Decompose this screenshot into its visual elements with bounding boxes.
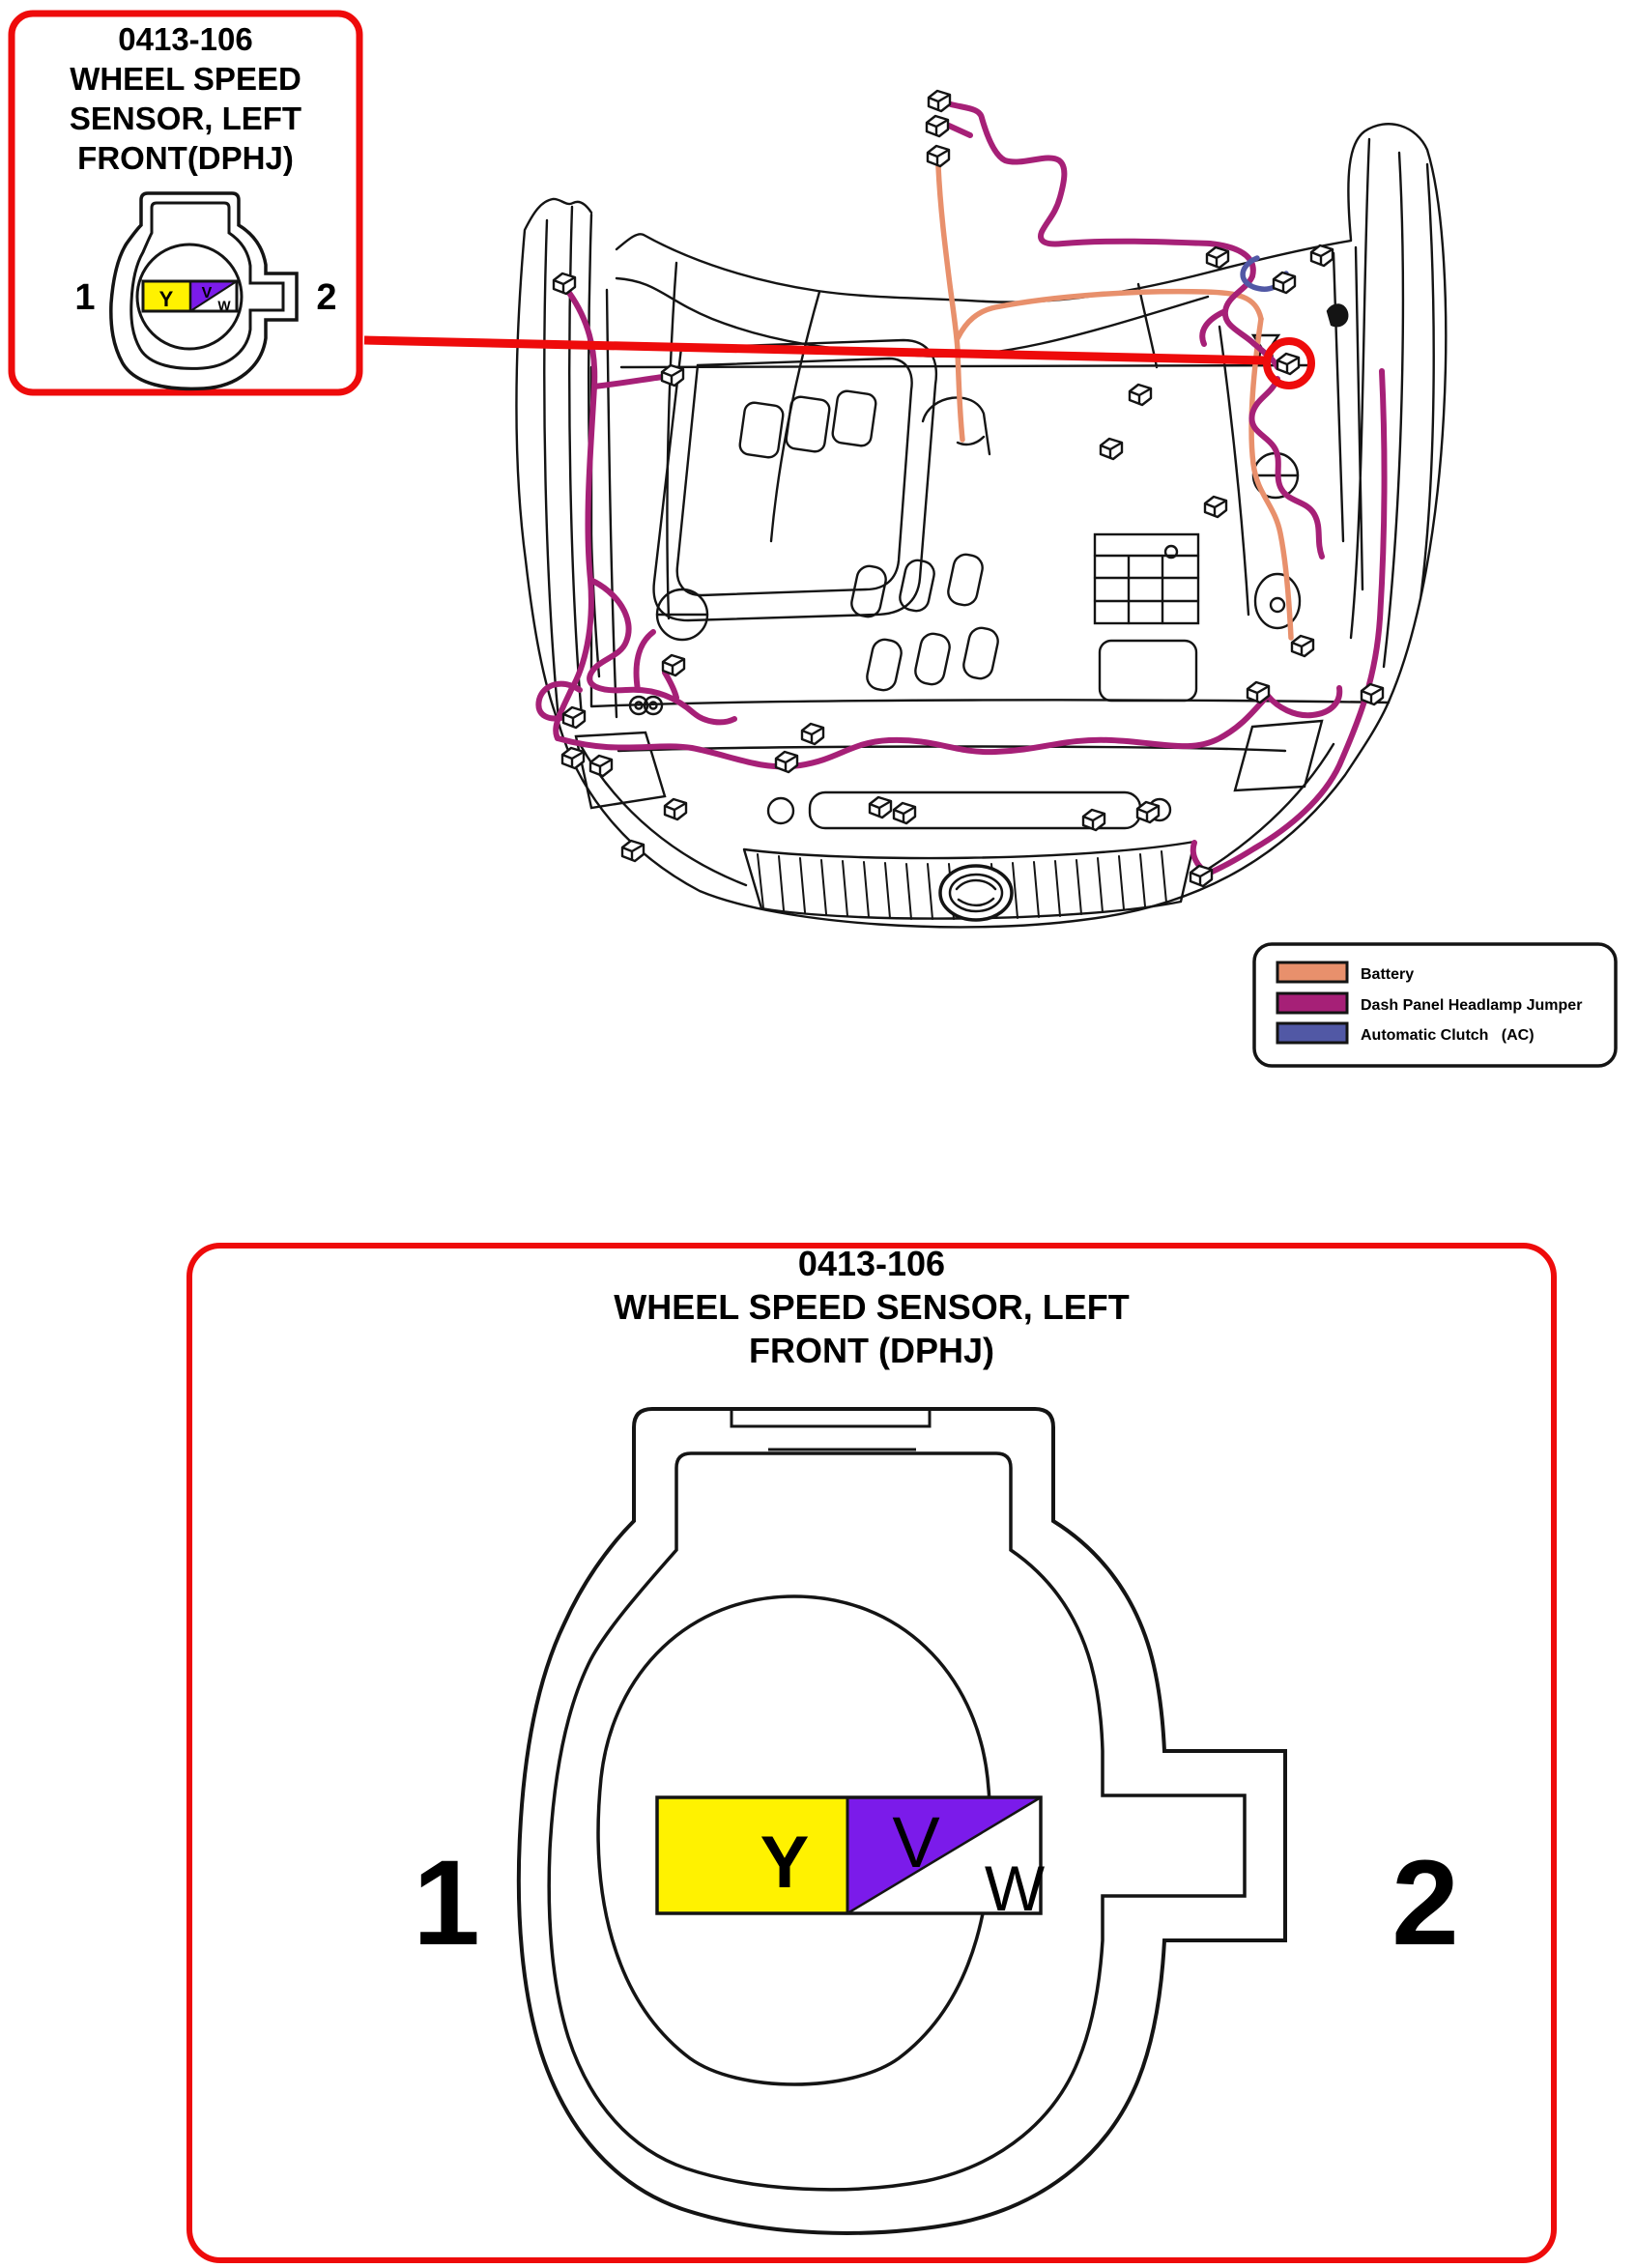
dphj-wire-top-loop xyxy=(951,104,1210,244)
connector-icon xyxy=(662,365,683,386)
washer-reservoir-hole xyxy=(1271,598,1284,612)
connector-icon xyxy=(928,146,949,166)
large-pin-1-label: 1 xyxy=(413,1836,480,1970)
large-callout-title-line1: WHEEL SPEED SENSOR, LEFT xyxy=(614,1287,1129,1327)
legend-label-battery: Battery xyxy=(1361,966,1414,983)
dphj-wire-fender-stub xyxy=(594,377,663,387)
connector-icon xyxy=(1207,247,1228,268)
connector-icon xyxy=(927,116,948,136)
connector-icon xyxy=(1248,682,1269,703)
legend-swatch-dphj xyxy=(1277,993,1347,1013)
large-callout-code: 0413-106 xyxy=(798,1244,945,1283)
small-connector-drawing: Y V W xyxy=(111,193,297,388)
connector-icon xyxy=(929,91,950,111)
legend-row-battery: Battery xyxy=(1277,962,1414,983)
connector-icon xyxy=(1362,684,1383,704)
large-pin-2-label: 2 xyxy=(1391,1836,1459,1970)
connector-icon xyxy=(894,803,915,823)
connector-icon xyxy=(802,724,823,744)
small-callout-title-line3: FRONT(DPHJ) xyxy=(77,140,294,176)
legend-label-dphj: Dash Panel Headlamp Jumper xyxy=(1361,997,1582,1014)
wire-color-legend: Battery Dash Panel Headlamp Jumper Autom… xyxy=(1237,933,1635,1077)
highlighted-connector-icon xyxy=(1277,354,1299,374)
right-fender-outline xyxy=(1334,124,1446,700)
large-connector-top-notch xyxy=(731,1409,930,1450)
small-wire-letter-y: Y xyxy=(159,287,174,311)
connector-icon xyxy=(563,707,585,728)
fuse-box xyxy=(1095,534,1198,623)
connector-icon xyxy=(1205,497,1226,517)
connector-icon xyxy=(665,799,686,819)
connector-icon xyxy=(554,273,575,294)
large-callout-box: 0413-106 WHEEL SPEED SENSOR, LEFT FRONT … xyxy=(179,1237,1570,2268)
cowl-lines xyxy=(617,234,1351,541)
connector-icon xyxy=(622,841,644,861)
connector-icon xyxy=(663,655,684,675)
legend-swatch-battery xyxy=(1277,962,1347,982)
legend-swatch-ac xyxy=(1277,1023,1347,1043)
dphj-wire-top-stub xyxy=(949,126,970,135)
dphj-wire-right-hooks xyxy=(1193,688,1339,874)
legend-row-dphj: Dash Panel Headlamp Jumper xyxy=(1277,993,1582,1014)
connector-icon xyxy=(1130,385,1151,405)
connector-icon xyxy=(1083,810,1104,830)
brand-emblem xyxy=(940,866,1012,920)
coolant-reservoir xyxy=(1100,641,1196,701)
small-callout-title-line2: SENSOR, LEFT xyxy=(70,100,301,136)
large-chip-yellow xyxy=(657,1797,847,1913)
small-callout-title-line1: WHEEL SPEED xyxy=(70,61,301,97)
large-wire-letter-v: V xyxy=(892,1802,940,1882)
connector-icon xyxy=(776,752,797,772)
legend-row-ac: Automatic Clutch (AC) xyxy=(1277,1023,1535,1044)
connector-icon xyxy=(1190,866,1212,886)
connector-icon xyxy=(1274,273,1295,293)
small-wire-letter-v: V xyxy=(202,285,213,301)
small-callout-code: 0413-106 xyxy=(118,21,252,57)
small-pin-1-label: 1 xyxy=(74,277,95,318)
dphj-wire-front-crossbar xyxy=(558,696,1268,766)
connector-icon xyxy=(870,797,891,818)
connector-icon xyxy=(562,748,584,768)
hood-latch-catch xyxy=(1328,304,1347,326)
connector-icon xyxy=(1292,636,1313,656)
engine-valve-cover xyxy=(654,340,936,620)
connector-icon xyxy=(1311,245,1333,266)
battery-wires xyxy=(938,166,1291,638)
small-wire-letter-w: W xyxy=(217,298,231,313)
connector-icon xyxy=(590,756,612,776)
large-wire-letter-w: W xyxy=(985,1852,1046,1924)
engine-bay-drawing xyxy=(358,39,1507,966)
wiring-diagram-page: 0413-106 WHEEL SPEED SENSOR, LEFT FRONT(… xyxy=(0,0,1635,2268)
connector-icon xyxy=(1101,439,1122,459)
grille xyxy=(744,842,1194,920)
hood-crease-lines xyxy=(667,263,1248,618)
large-connector-drawing: Y V W xyxy=(519,1409,1285,2233)
small-callout-box: 0413-106 WHEEL SPEED SENSOR, LEFT FRONT(… xyxy=(0,0,396,416)
large-callout-title-line2: FRONT (DPHJ) xyxy=(749,1331,994,1370)
large-wire-color-chip xyxy=(657,1797,1041,1913)
small-pin-2-label: 2 xyxy=(316,277,336,318)
connector-icon xyxy=(1137,802,1159,822)
legend-label-ac: Automatic Clutch (AC) xyxy=(1361,1027,1535,1044)
front-upper-panel xyxy=(768,792,1170,828)
large-wire-letter-y: Y xyxy=(760,1822,810,1904)
large-callout-border xyxy=(189,1246,1554,2260)
washer-reservoir-cap xyxy=(1255,574,1300,628)
